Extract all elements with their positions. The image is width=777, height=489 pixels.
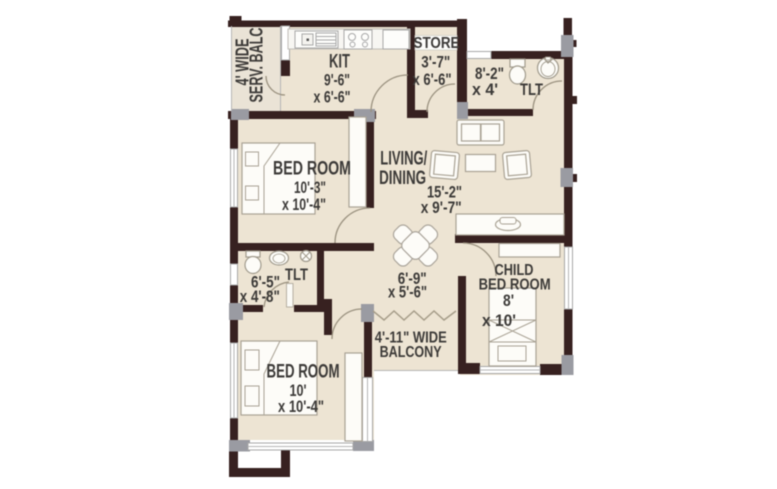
svg-text:BED ROOM: BED ROOM	[267, 362, 340, 383]
svg-text:x 4': x 4'	[472, 80, 498, 99]
svg-text:BALCONY: BALCONY	[380, 344, 442, 361]
svg-text:x 10'-4": x 10'-4"	[282, 195, 326, 214]
svg-text:LIVING/: LIVING/	[380, 149, 427, 170]
svg-text:SERV. BALC: SERV. BALC	[247, 28, 267, 103]
svg-text:3'-7": 3'-7"	[421, 53, 450, 72]
svg-text:KIT: KIT	[329, 52, 350, 73]
svg-text:x 10': x 10'	[482, 311, 516, 330]
svg-text:x 6'-6": x 6'-6"	[413, 70, 452, 89]
svg-text:DINING: DINING	[379, 168, 426, 189]
svg-text:x 10'-4": x 10'-4"	[278, 397, 324, 416]
svg-text:x 9'-7": x 9'-7"	[421, 198, 462, 217]
svg-text:BED ROOM: BED ROOM	[479, 276, 551, 293]
svg-text:x 4'-8": x 4'-8"	[240, 287, 280, 306]
svg-text:8': 8'	[503, 291, 514, 310]
svg-text:TLT: TLT	[285, 265, 308, 284]
svg-text:BED ROOM: BED ROOM	[273, 159, 351, 180]
svg-text:x 5'-6": x 5'-6"	[388, 283, 427, 302]
svg-text:TLT: TLT	[520, 80, 543, 99]
svg-text:x 6'-6": x 6'-6"	[314, 88, 351, 107]
svg-text:STORE: STORE	[414, 35, 460, 52]
